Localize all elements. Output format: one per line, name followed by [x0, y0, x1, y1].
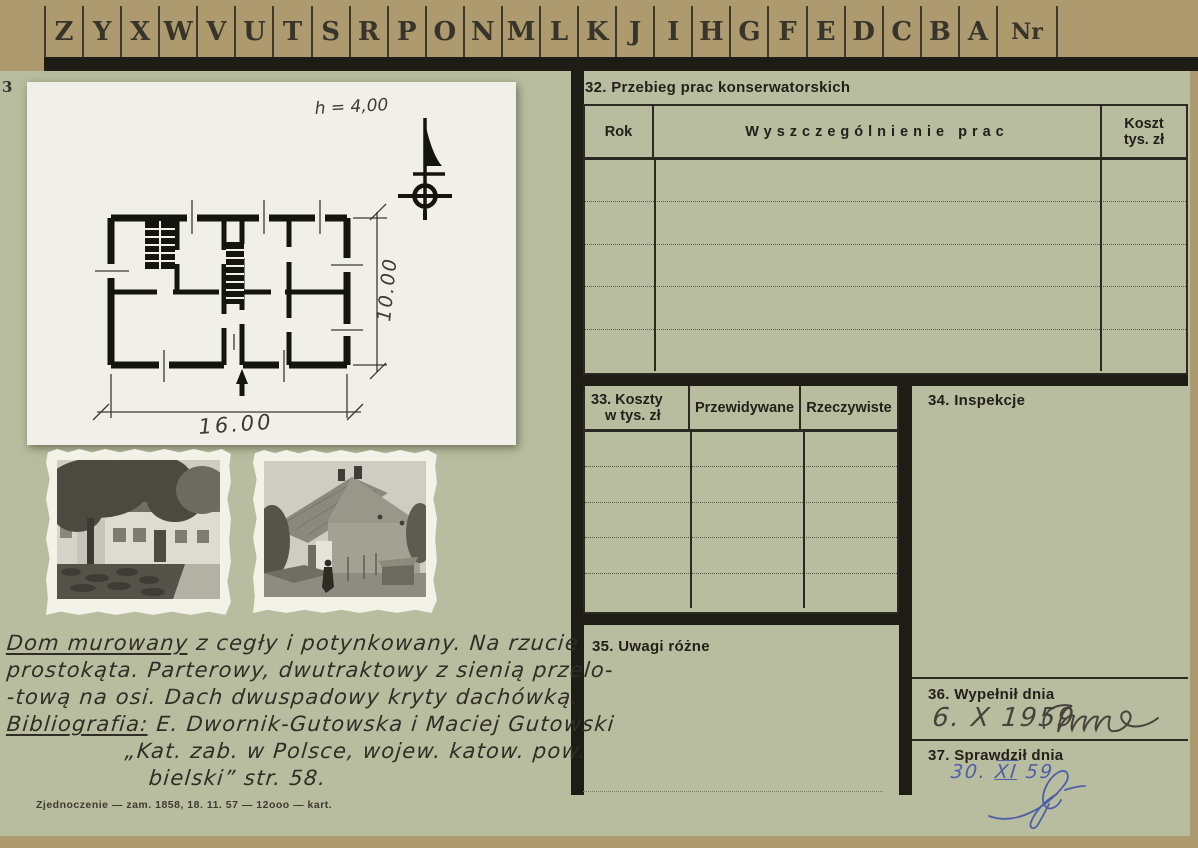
- tab-letter-label: U: [243, 17, 266, 47]
- col-header-koszty: 33. Koszty w tys. zł: [585, 386, 690, 429]
- section-32-bottom-rule: [583, 375, 1188, 386]
- section-34-title: 34. Inspekcje: [928, 392, 1025, 409]
- tab-letter-label: H: [699, 17, 724, 47]
- table-row: [585, 287, 1186, 329]
- tab-letter-label: F: [778, 17, 796, 47]
- table-divider: [690, 432, 692, 608]
- tab-letter: F: [767, 6, 805, 57]
- tab-letter-label: A: [968, 17, 988, 47]
- tab-nr: Nr: [996, 6, 1058, 57]
- tab-letter: Y: [82, 6, 120, 57]
- section-33-bottom-rule: [583, 614, 899, 625]
- col-header-przewidywane: Przewidywane: [690, 386, 801, 429]
- plan-width-dimension: 16.00: [198, 410, 275, 439]
- tab-letter: O: [425, 6, 463, 57]
- tab-letter: C: [882, 6, 920, 57]
- col-header-wyszczegolnienie: Wyszczególnienie prac: [654, 106, 1102, 157]
- col-header-koszt-line1: Koszt: [1124, 116, 1163, 132]
- handwriting-line-4: Bibliografia: E. Dwornik-Gutowska i Maci…: [6, 711, 578, 738]
- north-compass-icon: [398, 118, 452, 220]
- top-rule: [44, 57, 1198, 71]
- scanned-record-card: Z Y X W V U T S R P O N M L K J I H G F …: [0, 0, 1198, 848]
- photo-house-gable: [253, 450, 437, 613]
- tab-letter: J: [615, 6, 653, 57]
- tab-letter: U: [234, 6, 272, 57]
- bibliography-label: Bibliografia:: [6, 712, 150, 736]
- handwriting-underlined: Dom murowany: [6, 631, 190, 655]
- table-row: [585, 574, 897, 608]
- tab-letter-label: T: [283, 17, 302, 47]
- section-37-signature: [985, 764, 1115, 834]
- handwriting-line-3: -tową na osi. Dach dwuspadowy kryty dach…: [6, 684, 578, 711]
- table-row: [585, 330, 1186, 371]
- tab-letter: R: [349, 6, 387, 57]
- tab-letter-label: I: [667, 17, 679, 47]
- tab-letter: H: [691, 6, 729, 57]
- tab-letter-label: L: [550, 17, 568, 47]
- tab-letter-label: E: [816, 17, 836, 47]
- tab-letter-label: D: [852, 17, 875, 47]
- section-32-title: 32. Przebieg prac konserwatorskich: [585, 79, 850, 96]
- table-divider: [654, 160, 656, 371]
- tab-letter-label: O: [433, 17, 456, 47]
- section-35-title: 35. Uwagi różne: [592, 638, 710, 655]
- tab-letter: T: [272, 6, 310, 57]
- tab-letter: L: [539, 6, 577, 57]
- table-row: [585, 202, 1186, 244]
- tab-letter: Z: [44, 6, 82, 57]
- table-row: [585, 538, 897, 573]
- tab-letter-label: X: [130, 17, 150, 47]
- tab-letter: I: [653, 6, 691, 57]
- section-36-title: 36. Wypełnił dnia: [928, 686, 1055, 703]
- handwritten-description: Dom murowany z cegły i potynkowany. Na r…: [8, 630, 578, 792]
- col-header-koszt-line2: tys. zł: [1124, 132, 1164, 148]
- table-row: [585, 245, 1186, 287]
- photo-house-front: [46, 449, 231, 615]
- tab-letter-label: P: [397, 17, 417, 47]
- printers-imprint: Zjednoczenie — zam. 1858, 18. 11. 57 — 1…: [36, 799, 332, 811]
- section-36-signature: [1038, 700, 1188, 742]
- tab-letter-label: Y: [93, 17, 112, 47]
- tab-letter: X: [120, 6, 158, 57]
- tab-letter: V: [196, 6, 234, 57]
- tab-letter-label: R: [358, 17, 380, 47]
- section-36-bottom-rule: [912, 739, 1188, 741]
- section-32-table: Rok Wyszczególnienie prac Koszt tys. zł: [583, 104, 1188, 375]
- table-divider: [803, 432, 805, 608]
- section-33-table-header: 33. Koszty w tys. zł Przewidywane Rzeczy…: [585, 386, 897, 432]
- handwriting-line-5: „Kat. zab. w Polsce, wojew. katow. pow.: [6, 738, 578, 765]
- table-divider: [1100, 160, 1102, 371]
- tab-letter: N: [463, 6, 501, 57]
- tab-letter-label: V: [206, 17, 226, 47]
- section-32-table-header: Rok Wyszczególnienie prac Koszt tys. zł: [585, 106, 1186, 160]
- tab-letter-label: N: [471, 17, 495, 47]
- col-header-rzeczywiste: Rzeczywiste: [801, 386, 897, 429]
- col-header-rok: Rok: [585, 106, 654, 157]
- section-33-table-body: [585, 432, 897, 608]
- tab-letter: S: [311, 6, 349, 57]
- tab-letter: K: [577, 6, 615, 57]
- tab-letter: P: [387, 6, 425, 57]
- tab-letter-label: C: [891, 17, 912, 47]
- tab-nr-label: Nr: [1011, 19, 1043, 45]
- tab-letter: B: [920, 6, 958, 57]
- entrance-arrow: [236, 369, 248, 396]
- tab-letter-label: B: [929, 17, 951, 47]
- photo-house-gable-image: [264, 461, 426, 597]
- handwriting-line-1: Dom murowany z cegły i potynkowany. Na r…: [6, 630, 578, 657]
- handwriting-text: E. Dwornik-Gutowska i Maciej Gutowski: [148, 712, 616, 736]
- col-header-koszt: Koszt tys. zł: [1102, 106, 1186, 157]
- section-33-title-line1: 33. Koszty: [591, 392, 663, 408]
- tab-letter-label: S: [321, 17, 340, 47]
- date-day: 30.: [950, 761, 989, 783]
- section-36-top-rule: [912, 677, 1188, 679]
- tab-letter-label: J: [629, 17, 641, 47]
- tab-letter: W: [158, 6, 196, 57]
- table-row: [585, 160, 1186, 202]
- handwriting-text: z cegły i potynkowany. Na rzucie: [187, 631, 580, 655]
- floor-plan-sheet: h = 4,00 16.00 10.00: [27, 82, 516, 445]
- plan-height-annotation: h = 4,00: [314, 95, 389, 119]
- floor-plan-drawing: h = 4,00 16.00 10.00: [27, 82, 516, 445]
- table-row: [585, 432, 897, 467]
- table-row: [585, 467, 897, 502]
- photo-house-front-image: [57, 460, 220, 599]
- section-32-table-body: [585, 160, 1186, 371]
- alphabet-tab-strip: Z Y X W V U T S R P O N M L K J I H G F …: [44, 6, 1058, 57]
- handwriting-line-6: bielski” str. 58.: [6, 765, 578, 792]
- tab-letter-label: W: [164, 17, 193, 47]
- tab-letter: G: [729, 6, 767, 57]
- tab-letter-label: K: [586, 17, 609, 47]
- tab-letter-label: Z: [55, 17, 74, 47]
- handwriting-line-2: prostokąta. Parterowy, dwutraktowy z sie…: [6, 657, 578, 684]
- table-row: [585, 503, 897, 538]
- tab-letter: E: [806, 6, 844, 57]
- tab-letter: D: [844, 6, 882, 57]
- cutoff-section-number: 3: [2, 78, 12, 96]
- tab-letter-label: M: [507, 17, 536, 47]
- section-33-table: 33. Koszty w tys. zł Przewidywane Rzeczy…: [583, 386, 899, 614]
- tab-letter: A: [958, 6, 996, 57]
- right-divider-bar: [899, 386, 912, 795]
- tab-letter-label: G: [738, 17, 760, 47]
- section-33-title-line2: w tys. zł: [591, 408, 661, 424]
- section-35-bottom-dotted: [583, 790, 883, 792]
- tab-letter: M: [501, 6, 539, 57]
